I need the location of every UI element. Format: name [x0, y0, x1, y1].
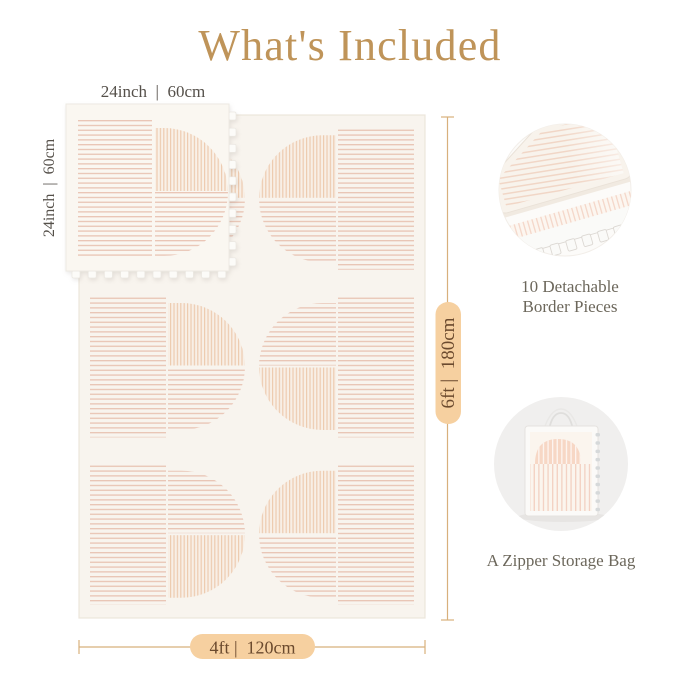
svg-text:4ft | 120cm: 4ft | 120cm: [209, 638, 295, 658]
svg-text:6ft | 180cm: 6ft | 180cm: [438, 317, 459, 408]
